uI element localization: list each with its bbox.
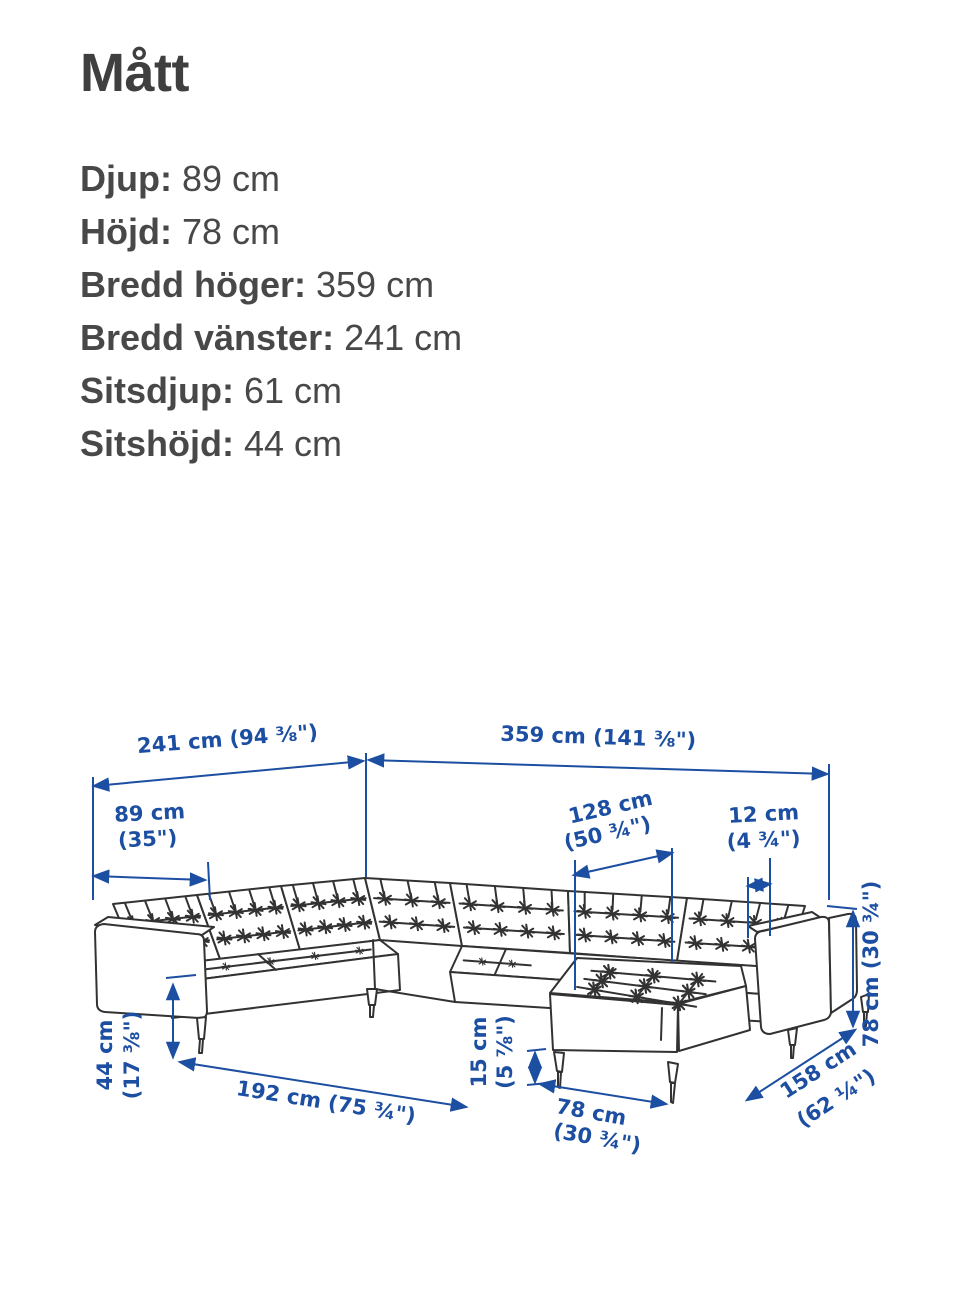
spec-label: Höjd: [80, 211, 172, 252]
spec-row-sitshojd: Sitshöjd:44 cm [80, 417, 462, 470]
dim-depth-line1: 89 cm [114, 799, 186, 827]
left-armrest [95, 924, 207, 1018]
back-cushion-corner [365, 878, 462, 946]
back-cushion [281, 878, 380, 950]
base-join [375, 989, 455, 1002]
dim-leg-height-line2: (5 ⅞") [493, 1015, 517, 1089]
dimensions-page: { "page": { "title": "Mått" }, "specs": … [0, 0, 960, 1300]
dim-inner-width: 192 cm (75 ¾") [235, 1076, 418, 1128]
spec-row-hojd: Höjd:78 cm [80, 205, 462, 258]
sofa-leg [668, 1062, 678, 1103]
page-title: Mått [80, 40, 189, 106]
dim-width-right: 359 cm (141 ⅜") [500, 722, 697, 753]
dim-depth-line2: (35") [117, 825, 178, 852]
sofa-leg [788, 1028, 797, 1058]
spec-label: Djup: [80, 158, 172, 199]
dim-height: 78 cm (30 ¾") [859, 881, 883, 1048]
sofa-dimension-drawing: 241 cm (94 ⅜") 359 cm (141 ⅜") 89 cm (35… [0, 700, 960, 1220]
dim-gap-line1: 12 cm [728, 800, 800, 828]
spec-row-djup: Djup:89 cm [80, 152, 462, 205]
right-armrest [755, 917, 831, 1034]
sofa-leg [554, 1052, 564, 1088]
dim-seat-height-line2: (17 ⅜") [120, 1011, 144, 1099]
dim-seat-height-line1: 44 cm [93, 1020, 117, 1091]
sofa-leg [367, 989, 377, 1017]
chaise-crease [661, 1008, 662, 1040]
spec-value: 78 cm [182, 211, 280, 252]
spec-label: Sitsdjup: [80, 370, 234, 411]
chaise-front [550, 994, 678, 1052]
sofa-leg [197, 1017, 206, 1053]
spec-value: 241 cm [344, 317, 462, 358]
dimension-diagram: 241 cm (94 ⅜") 359 cm (141 ⅜") 89 cm (35… [0, 700, 960, 1220]
spec-value: 44 cm [244, 423, 342, 464]
spec-label: Bredd vänster: [80, 317, 334, 358]
spec-row-bredd-vanster: Bredd vänster:241 cm [80, 311, 462, 364]
spec-list: Djup:89 cm Höjd:78 cm Bredd höger:359 cm… [80, 152, 462, 470]
dim-gap-line2: (4 ¾") [726, 826, 801, 854]
dim-width-left: 241 cm (94 ⅜") [136, 720, 319, 758]
spec-value: 359 cm [316, 264, 434, 305]
spec-label: Sitshöjd: [80, 423, 234, 464]
spec-label: Bredd höger: [80, 264, 306, 305]
spec-row-sitsdjup: Sitsdjup:61 cm [80, 364, 462, 417]
spec-value: 89 cm [182, 158, 280, 199]
spec-value: 61 cm [244, 370, 342, 411]
spec-row-bredd-hoger: Bredd höger:359 cm [80, 258, 462, 311]
dim-leg-height-line1: 15 cm [467, 1017, 491, 1088]
